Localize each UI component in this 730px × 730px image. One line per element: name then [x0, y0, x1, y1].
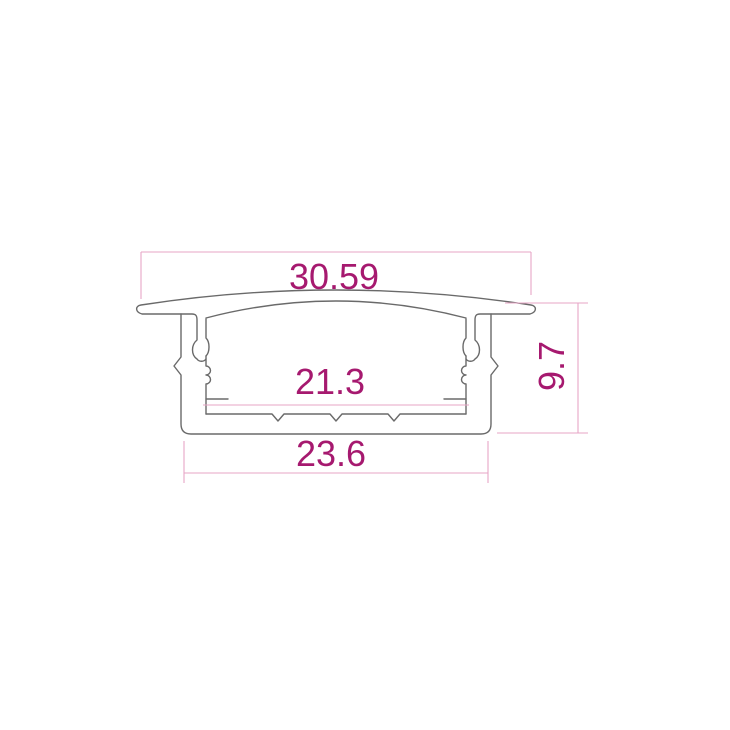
- top-width-label: 30.59: [289, 256, 379, 297]
- technical-drawing: 30.59 21.3 23.6 9.7: [0, 0, 730, 730]
- profile-right-clip-slot: [466, 314, 491, 361]
- drawing-svg: 30.59 21.3 23.6 9.7: [0, 0, 730, 730]
- profile-right-clip-leg: [463, 319, 466, 356]
- profile-cover-inner-arc: [206, 301, 466, 318]
- profile-bottom-plate: [206, 414, 466, 421]
- profile-left-clip-leg: [206, 319, 209, 356]
- inner-width-label: 21.3: [295, 361, 365, 402]
- profile-left-clip-slot: [181, 314, 206, 361]
- page: { "diagram": { "type": "technical-cross-…: [0, 0, 730, 730]
- height-label: 9.7: [531, 341, 572, 391]
- bottom-width-label: 23.6: [296, 433, 366, 474]
- dimension-group: 30.59 21.3 23.6 9.7: [141, 252, 588, 483]
